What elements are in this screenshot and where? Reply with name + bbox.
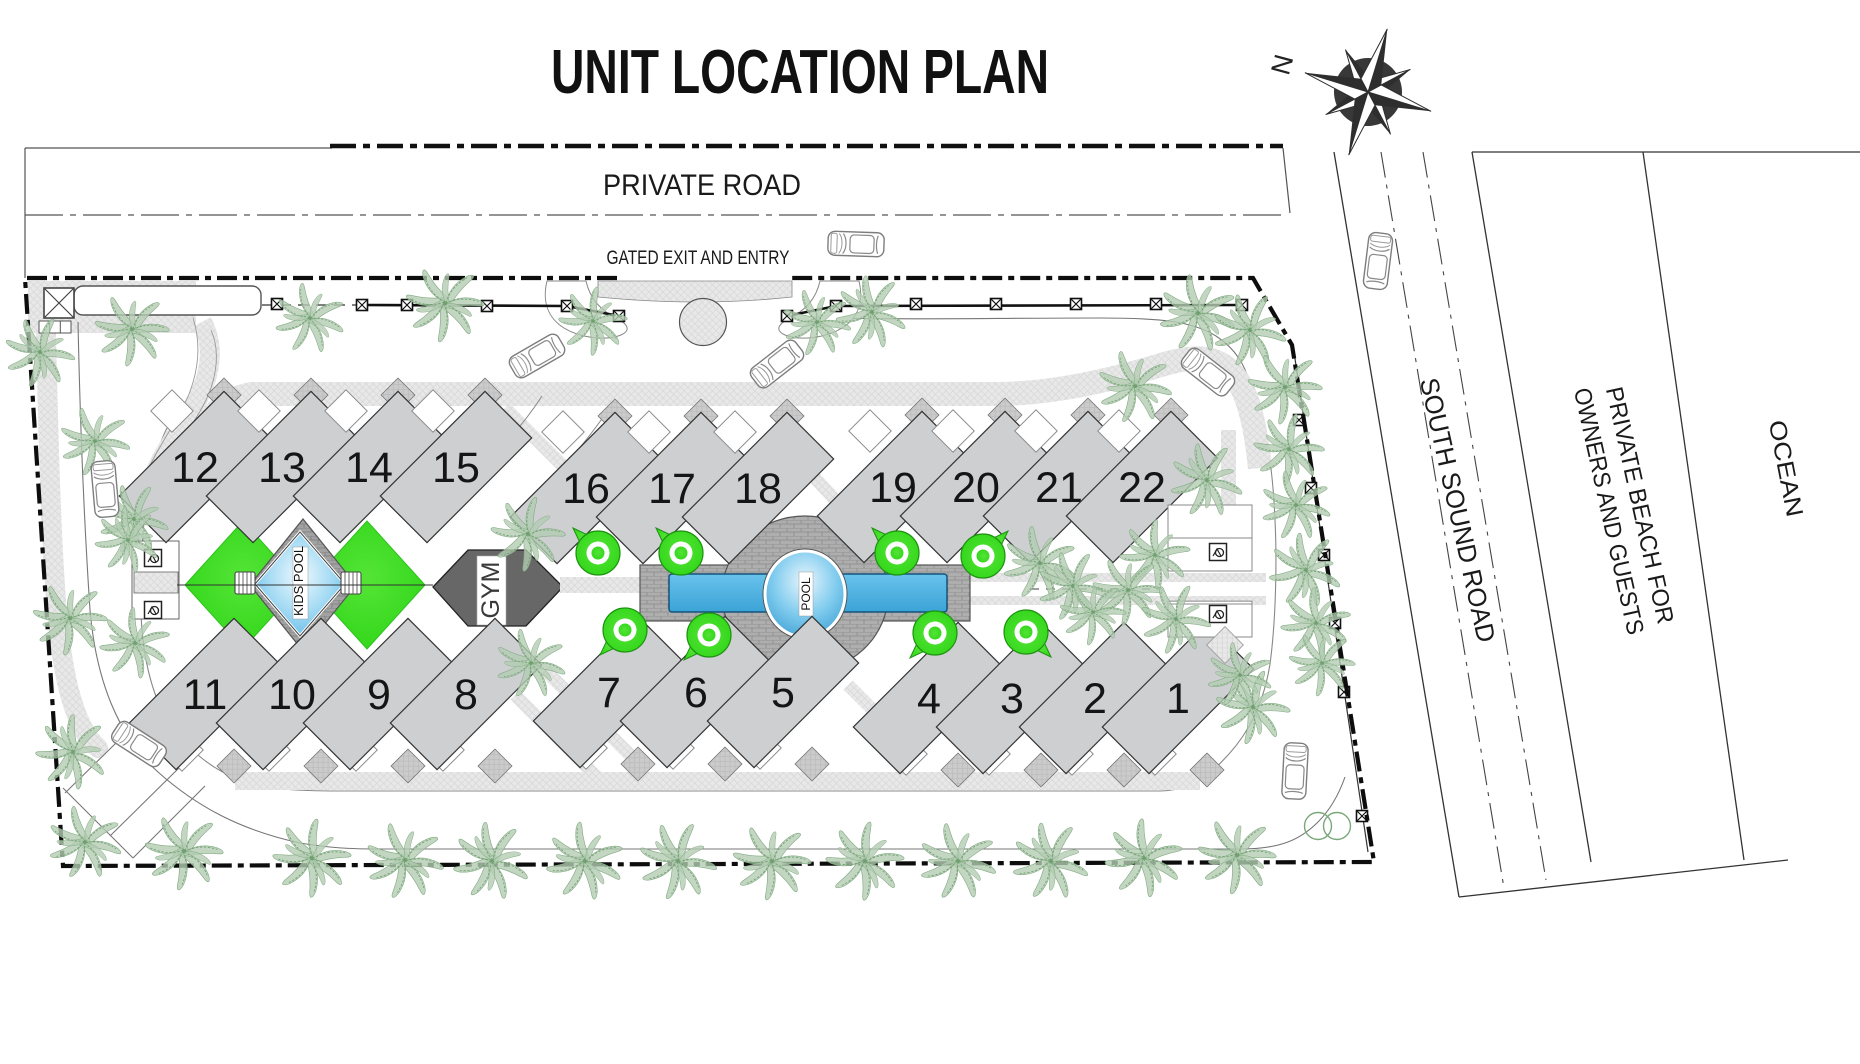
svg-text:6: 6 — [684, 669, 708, 717]
svg-text:3: 3 — [1000, 675, 1024, 723]
svg-text:17: 17 — [648, 465, 696, 513]
svg-text:KIDS POOL: KIDS POOL — [291, 546, 306, 616]
svg-text:11: 11 — [183, 671, 228, 719]
svg-text:14: 14 — [345, 444, 393, 492]
svg-text:2: 2 — [1083, 675, 1107, 723]
svg-text:12: 12 — [171, 444, 219, 492]
svg-text:GYM: GYM — [477, 562, 505, 619]
svg-text:UNIT LOCATION PLAN: UNIT LOCATION PLAN — [551, 38, 1049, 107]
svg-text:16: 16 — [562, 465, 610, 513]
svg-text:13: 13 — [258, 444, 306, 492]
svg-text:7: 7 — [597, 669, 621, 717]
svg-text:9: 9 — [367, 671, 391, 719]
svg-text:18: 18 — [734, 465, 782, 513]
svg-text:PRIVATE ROAD: PRIVATE ROAD — [603, 169, 801, 202]
svg-text:GATED EXIT AND ENTRY: GATED EXIT AND ENTRY — [607, 248, 790, 269]
svg-text:21: 21 — [1035, 464, 1083, 512]
svg-text:10: 10 — [268, 671, 316, 719]
svg-text:22: 22 — [1118, 464, 1166, 512]
svg-text:POOL: POOL — [799, 577, 813, 611]
svg-text:8: 8 — [454, 671, 478, 719]
svg-text:1: 1 — [1166, 675, 1190, 723]
svg-text:4: 4 — [917, 675, 941, 723]
svg-text:15: 15 — [432, 444, 480, 492]
svg-text:5: 5 — [771, 669, 795, 717]
svg-text:20: 20 — [952, 464, 1000, 512]
svg-text:19: 19 — [869, 464, 917, 512]
